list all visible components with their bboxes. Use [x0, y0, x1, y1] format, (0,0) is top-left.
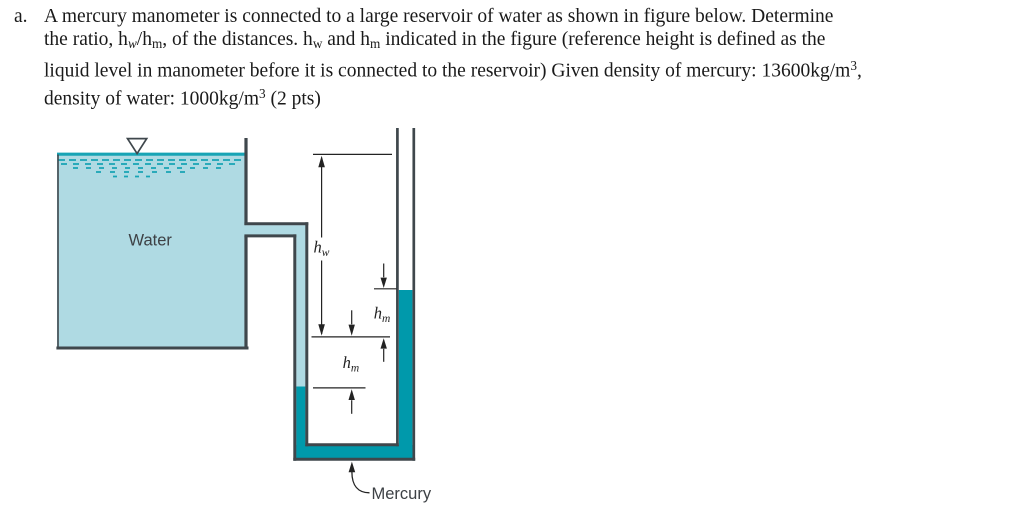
water-fill-group [57, 155, 307, 389]
hm-upper-label: hm [374, 303, 391, 325]
worksheet-page: a. A mercury manometer is connected to a… [0, 0, 1024, 513]
mercury-leader-arrowhead-up [349, 462, 356, 473]
mercury-label: Mercury [372, 485, 432, 503]
water-label: Water [129, 232, 173, 250]
u-bottom-mercury [296, 445, 412, 459]
mercury-fill-group [296, 290, 412, 460]
hw-arrowhead-up [318, 156, 325, 167]
left-limb-water [296, 234, 305, 388]
hm-lower-arrowhead-down [349, 325, 355, 336]
hm-lower-label: hm [343, 353, 360, 375]
hm-upper-arrowhead-down [381, 278, 387, 288]
hw-label: hw [314, 238, 330, 260]
reservoir-water [57, 155, 246, 349]
hw-arrowhead-down [318, 324, 325, 335]
hm-lower-arrowhead-up [349, 389, 355, 400]
hm-upper-arrowhead-up [381, 338, 387, 348]
free-surface-marker-triangle [128, 139, 147, 154]
manometer-figure: Water Mercury hw hm hm [0, 0, 1024, 513]
mercury-leader-line [352, 466, 370, 493]
pipe-water [244, 225, 307, 235]
right-tube-mercury [399, 290, 413, 460]
